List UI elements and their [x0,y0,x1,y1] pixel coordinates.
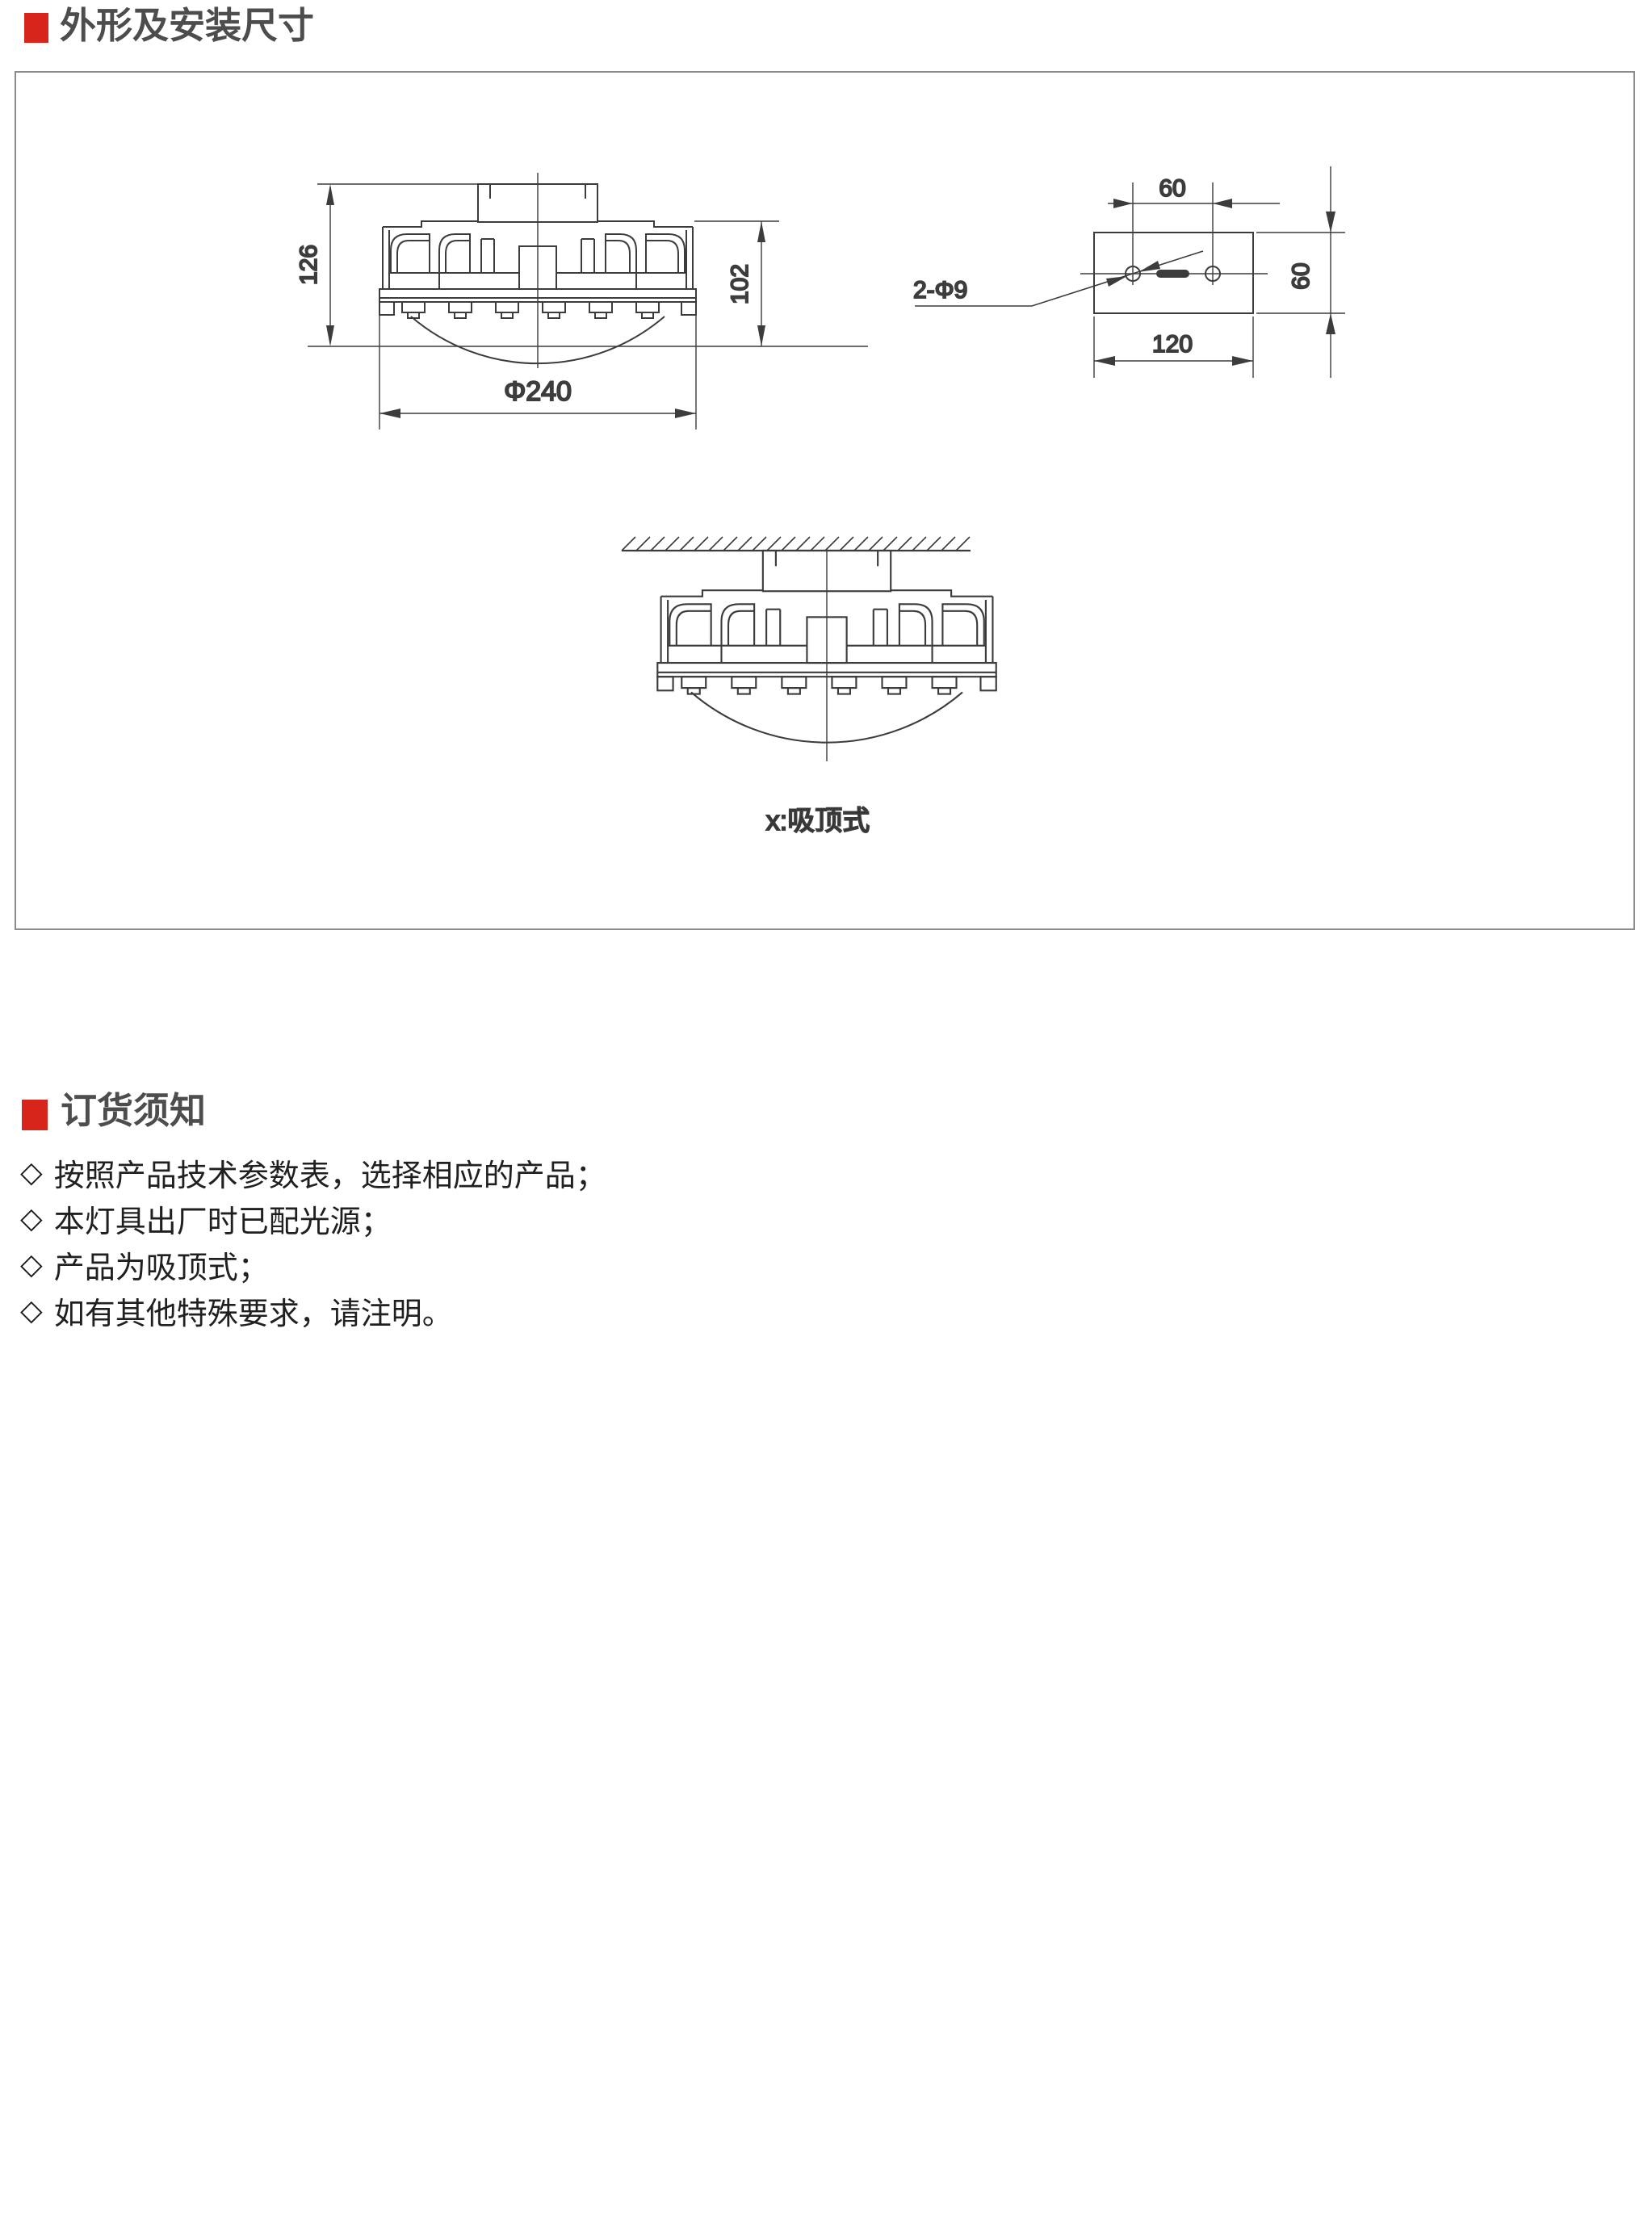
ceiling-hatch [622,537,970,551]
section-header-ordering: 订货须知 [22,1092,206,1130]
diamond-bullet-icon: ◇ [20,1293,43,1327]
ordering-notes-list: ◇ 按照产品技术参数表，选择相应的产品； ◇ 本灯具出厂时已配光源； ◇ 产品为… [20,1157,606,1341]
flange-clips [402,302,659,318]
dim-holes-label: 2-Φ9 [913,277,967,304]
dim-overall-height: 126 [296,245,322,285]
mounting-plate-drawing: 60 60 120 2-Φ9 [913,166,1345,378]
technical-drawings: 126 102 Φ240 60 60 120 [0,0,1652,928]
ceiling-view-caption: x:吸顶式 [766,806,870,836]
note-text: 按照产品技术参数表，选择相应的产品； [54,1150,606,1195]
note-text: 本灯具出厂时已配光源； [54,1197,392,1241]
diamond-bullet-icon: ◇ [20,1155,43,1189]
section-marker-icon [22,1100,48,1130]
mounting-slot [1156,270,1189,278]
diamond-bullet-icon: ◇ [20,1247,43,1281]
dim-plate-height: 60 [1288,262,1314,289]
list-item: ◇ 按照产品技术参数表，选择相应的产品； [20,1157,606,1188]
diamond-bullet-icon: ◇ [20,1201,43,1235]
note-text: 产品为吸顶式； [54,1243,269,1287]
list-item: ◇ 产品为吸顶式； [20,1249,606,1280]
dim-hole-spacing: 60 [1159,175,1185,202]
list-item: ◇ 本灯具出厂时已配光源； [20,1203,606,1234]
list-item: ◇ 如有其他特殊要求，请注明。 [20,1295,606,1326]
section-title-ordering: 订货须知 [61,1092,206,1129]
dim-plate-width: 120 [1152,331,1193,358]
dim-diameter: Φ240 [504,376,572,407]
dim-body-height: 102 [727,264,753,304]
ceiling-mount-drawing: x:吸顶式 [622,537,996,836]
note-text: 如有其他特殊要求，请注明。 [54,1289,453,1333]
